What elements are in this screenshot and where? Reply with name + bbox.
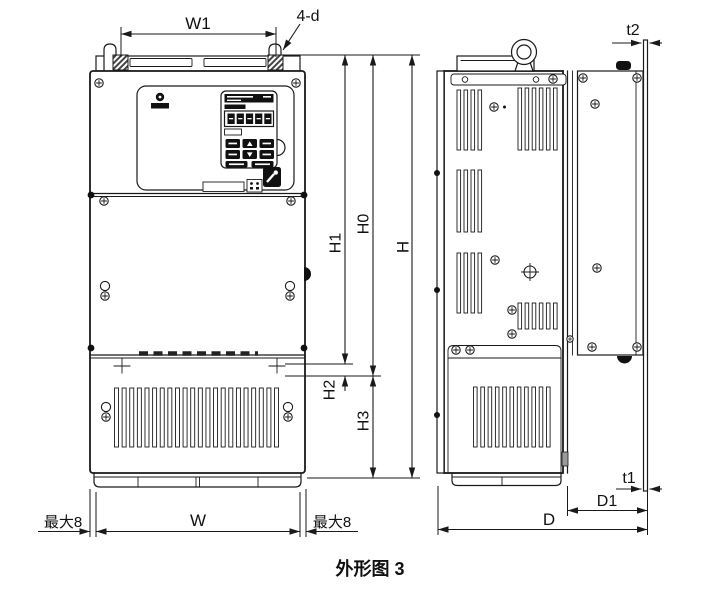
front-view <box>88 44 311 487</box>
keypad-operator <box>221 91 285 168</box>
seven-segment-display <box>225 111 274 127</box>
technical-drawing: W1 4-d t2 H1 H0 H H2 H3 最大8 W 最大8 t1 D1 … <box>0 0 706 597</box>
dim-label-t1: t1 <box>622 470 635 487</box>
rear-mounting-plate <box>644 40 648 491</box>
mounting-channel <box>568 71 573 473</box>
dim-label-d: D <box>543 510 555 529</box>
nameplate <box>203 182 244 192</box>
heatsink-fin-section <box>578 71 644 355</box>
side-bottom-lip <box>452 473 561 486</box>
top-clip <box>616 61 631 70</box>
dim-label-max8-right: 最大8 <box>313 514 351 531</box>
mounting-screw-right <box>268 55 283 70</box>
leader-4d <box>283 24 300 50</box>
terminal-mini-box <box>247 180 262 193</box>
figure-caption: 外形图 3 <box>335 558 404 579</box>
dim-label-h0: H0 <box>356 214 373 235</box>
dim-label-4d: 4-d <box>296 8 319 25</box>
lifting-hook-left <box>104 44 128 70</box>
dim-label-w1: W1 <box>185 14 211 33</box>
dim-label-d1: D1 <box>597 493 618 510</box>
bottom-clip <box>617 356 632 364</box>
dim-label-h1: H1 <box>328 233 345 254</box>
dim-label-h3: H3 <box>356 411 373 432</box>
side-view <box>434 40 648 492</box>
drawing-page: W1 4-d t2 H1 H0 H H2 H3 最大8 W 最大8 t1 D1 … <box>0 0 706 597</box>
dim-label-max8-left: 最大8 <box>44 514 82 531</box>
dim-label-w: W <box>190 511 206 530</box>
dim-label-h: H <box>394 241 413 253</box>
dim-label-h2: H2 <box>322 380 339 401</box>
hinge-tab <box>562 452 568 466</box>
keypad-led-row <box>225 129 242 135</box>
bottom-lip <box>94 473 301 487</box>
mounting-screw-left <box>113 55 128 70</box>
connector-icon <box>263 167 281 187</box>
dim-label-t2: t2 <box>626 22 639 39</box>
side-latch <box>304 267 311 281</box>
